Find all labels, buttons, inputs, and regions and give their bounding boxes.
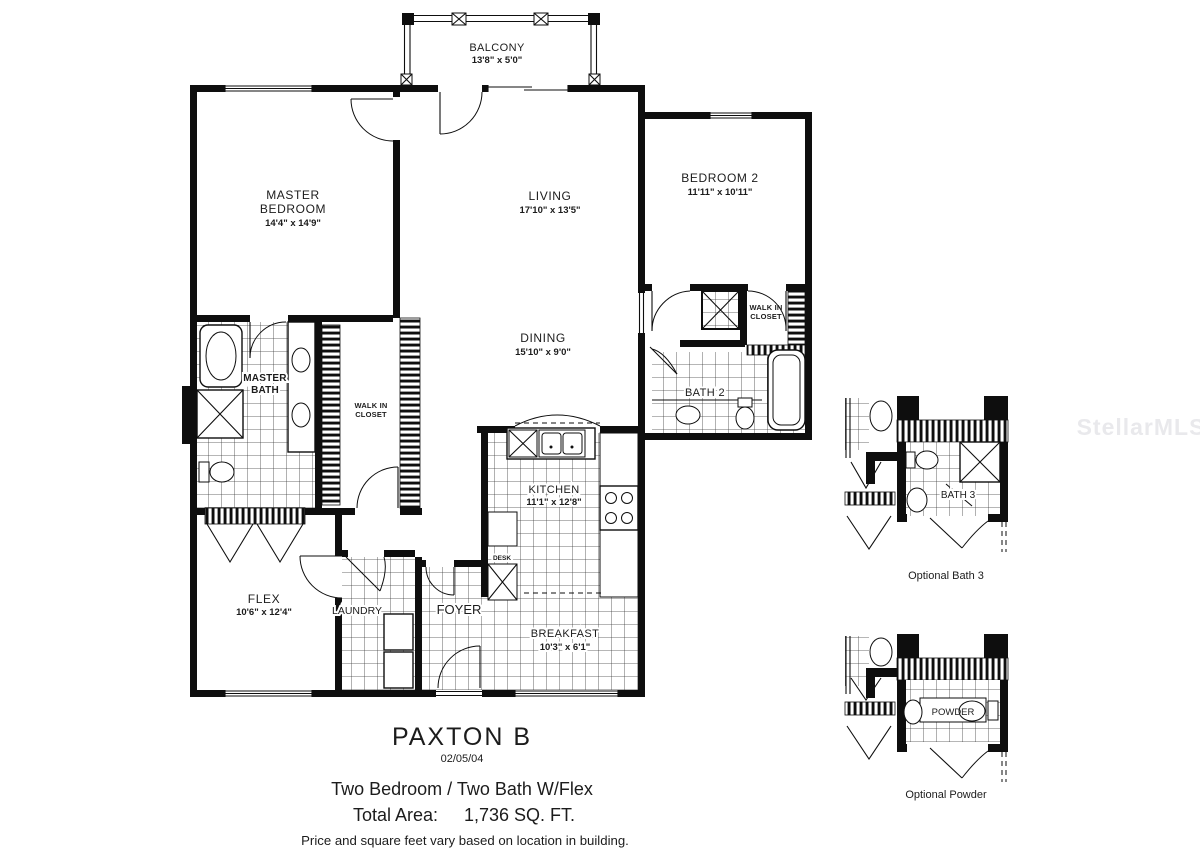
hall-cased-opening <box>638 293 645 333</box>
stove <box>600 486 638 530</box>
toilet <box>736 398 754 429</box>
desk-label: DESK <box>493 555 511 562</box>
wic-master-door <box>357 467 398 508</box>
flex-window <box>225 690 312 697</box>
powder-caption: Optional Powder <box>905 789 987 801</box>
wic-bedroom2-label-2: CLOSET <box>750 312 782 321</box>
foyer-label: FOYER <box>437 602 482 617</box>
breakfast-label: BREAKFAST <box>531 628 599 640</box>
plan-date: 02/05/04 <box>441 753 484 765</box>
bedroom2-window <box>710 112 752 119</box>
living-dims: 17'10" x 13'5" <box>519 205 580 216</box>
kitchen-label: KITCHEN <box>528 484 579 496</box>
inset-optional-powder: POWDER Optional Powder <box>845 634 1008 801</box>
toilet <box>906 451 938 469</box>
desk-cabinet <box>488 564 517 600</box>
shower <box>197 390 243 438</box>
kitchen-dims: 11'1" x 12'8" <box>526 497 581 508</box>
wic-bedroom2-label-1: WALK IN <box>749 303 782 312</box>
master-bath-label-2: BATH <box>251 385 279 396</box>
balcony-post <box>588 13 600 25</box>
breakfast-dims: 10'3" x 6'1" <box>540 642 591 653</box>
dishwasher <box>509 430 537 457</box>
inset-optional-bath3: BATH 3 Optional Bath 3 <box>845 396 1008 582</box>
washer <box>384 614 413 650</box>
powder-label: POWDER <box>932 707 975 718</box>
sink <box>292 348 310 372</box>
master-bedroom-label-1: MASTER <box>266 188 320 202</box>
sink <box>907 488 927 512</box>
double-sink <box>539 430 585 457</box>
master-bedroom-label-2: BEDROOM <box>260 202 326 216</box>
master-door <box>351 99 393 141</box>
balcony-door <box>440 92 482 134</box>
dining-dims: 15'10" x 9'0" <box>515 347 571 358</box>
balcony-dims: 13'8" x 5'0" <box>472 55 523 66</box>
sink <box>904 700 922 724</box>
title-block: PAXTON B 02/05/04 Two Bedroom / Two Bath… <box>301 723 629 848</box>
wic-master-label-2: CLOSET <box>355 410 387 419</box>
flex-double-doors <box>207 524 303 562</box>
plan-description: Two Bedroom / Two Bath W/Flex <box>331 779 593 799</box>
total-area-label: Total Area: <box>353 805 438 825</box>
bath3-caption: Optional Bath 3 <box>908 570 984 582</box>
flex-dims: 10'6" x 12'4" <box>236 607 292 618</box>
floor-plan-page: BALCONY 13'8" x 5'0" <box>0 0 1200 850</box>
laundry-label: LAUNDRY <box>332 605 382 617</box>
plan-name: PAXTON B <box>392 723 532 751</box>
balcony-rail-x-marks <box>452 13 548 25</box>
balcony-post <box>402 13 414 25</box>
bath2-label: BATH 2 <box>685 387 725 399</box>
balcony-label: BALCONY <box>469 42 525 54</box>
balcony-slider <box>488 85 568 92</box>
dining-label: DINING <box>520 331 566 345</box>
wic-master-label-1: WALK IN <box>354 401 387 410</box>
watermark: StellarMLS <box>1077 414 1200 440</box>
disclaimer: Price and square feet vary based on loca… <box>301 833 629 848</box>
master-window <box>225 85 312 92</box>
bedroom2-linen-closet <box>702 291 739 329</box>
dryer <box>384 652 413 688</box>
master-bath-label-1: MASTER <box>243 373 287 384</box>
vanity <box>288 322 315 452</box>
breakfast-window <box>515 690 618 697</box>
sink <box>676 406 700 424</box>
flex-label: FLEX <box>248 592 280 606</box>
bedroom2-dims: 11'11" x 10'11" <box>688 187 753 198</box>
toilet <box>199 462 234 482</box>
sink <box>292 403 310 427</box>
pass-through-counter <box>515 415 600 426</box>
balcony: BALCONY 13'8" x 5'0" <box>401 13 600 85</box>
master-bedroom-dims: 14'4" x 14'9" <box>265 218 321 229</box>
flex-door <box>300 556 342 598</box>
pantry <box>488 512 517 546</box>
bedroom2-hall-door <box>652 291 690 331</box>
bedroom2-label: BEDROOM 2 <box>681 171 758 185</box>
bath3-label: BATH 3 <box>941 490 976 501</box>
total-area-value: 1,736 SQ. FT. <box>464 805 575 825</box>
floor-plan-drawing: BALCONY 13'8" x 5'0" <box>0 0 1200 850</box>
living-label: LIVING <box>529 189 572 203</box>
